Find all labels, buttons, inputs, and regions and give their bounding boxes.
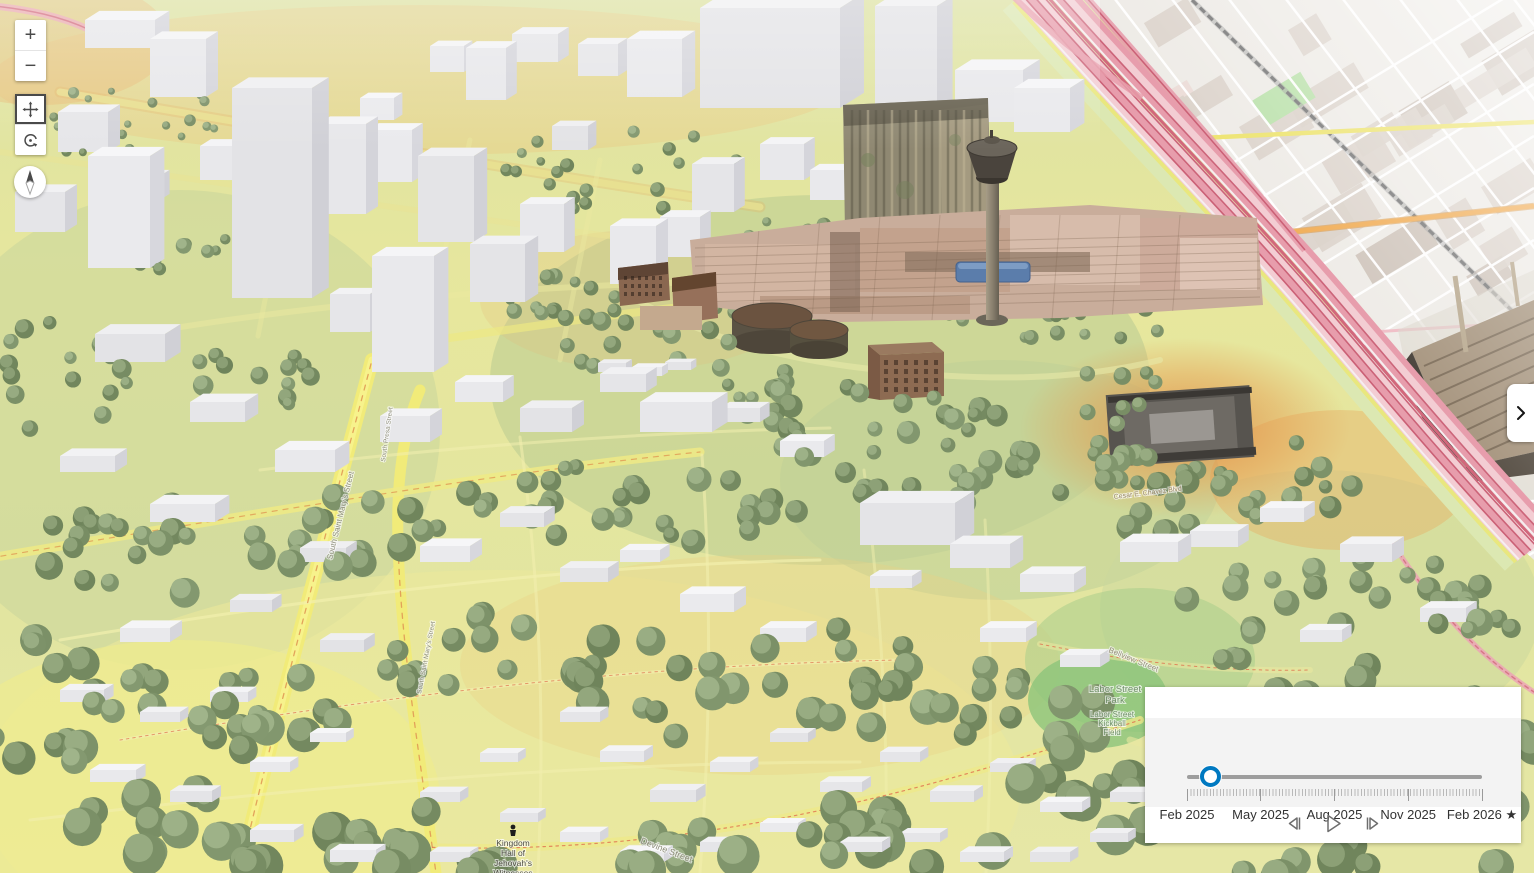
- time-slider-thumb[interactable]: [1200, 766, 1221, 787]
- navigation-mode-controls: [15, 94, 46, 155]
- time-slider-strip: Feb 2025 May 2025 Aug 2025 Nov 2025 Feb …: [1145, 718, 1521, 807]
- time-slider-track[interactable]: [1187, 775, 1482, 779]
- park-label: Field: [1103, 728, 1120, 737]
- chevron-right-icon: [1516, 405, 1526, 421]
- time-slider-ruler: [1187, 789, 1483, 796]
- poi-icon: [510, 830, 516, 836]
- compass-needle-icon: [14, 166, 46, 198]
- time-slider-panel: Feb 2025 May 2025 Aug 2025 Nov 2025 Feb …: [1145, 687, 1521, 843]
- major-tick: [1260, 789, 1261, 801]
- previous-step-icon: [1286, 815, 1303, 832]
- major-tick: [1187, 789, 1188, 801]
- major-tick: [1334, 789, 1335, 801]
- park-label: Kickball: [1098, 719, 1126, 728]
- rotate-mode-button[interactable]: [15, 124, 46, 155]
- zoom-out-button[interactable]: −: [15, 50, 46, 81]
- major-tick: [1482, 789, 1483, 801]
- zoom-controls: + −: [15, 20, 46, 81]
- pan-icon: [22, 101, 39, 118]
- poi-label: Witnesses: [493, 868, 532, 873]
- distance-haze: [0, 0, 1100, 150]
- play-button[interactable]: [1321, 811, 1346, 836]
- next-step-icon: [1364, 815, 1381, 832]
- playback-controls: [1145, 811, 1521, 836]
- pan-mode-button[interactable]: [15, 94, 46, 124]
- zoom-in-button[interactable]: +: [15, 20, 46, 50]
- expand-panel-button[interactable]: [1507, 384, 1534, 442]
- poi-label: Hall of: [501, 848, 526, 858]
- compass-button[interactable]: [14, 166, 46, 198]
- major-tick: [1408, 789, 1409, 801]
- poi-label: Jehovah's: [494, 858, 532, 868]
- previous-step-button[interactable]: [1284, 813, 1305, 834]
- rotate-orbit-icon: [22, 132, 39, 149]
- scene-viewport[interactable]: South Saint Mary's Street South Saint Ma…: [0, 0, 1534, 873]
- poi-label: Kingdom: [496, 838, 530, 848]
- play-icon: [1323, 813, 1344, 834]
- park-label: Park: [1105, 695, 1125, 706]
- park-label: Labor Street: [1089, 684, 1142, 695]
- park-label: Labor Street: [1090, 710, 1135, 719]
- next-step-button[interactable]: [1362, 813, 1383, 834]
